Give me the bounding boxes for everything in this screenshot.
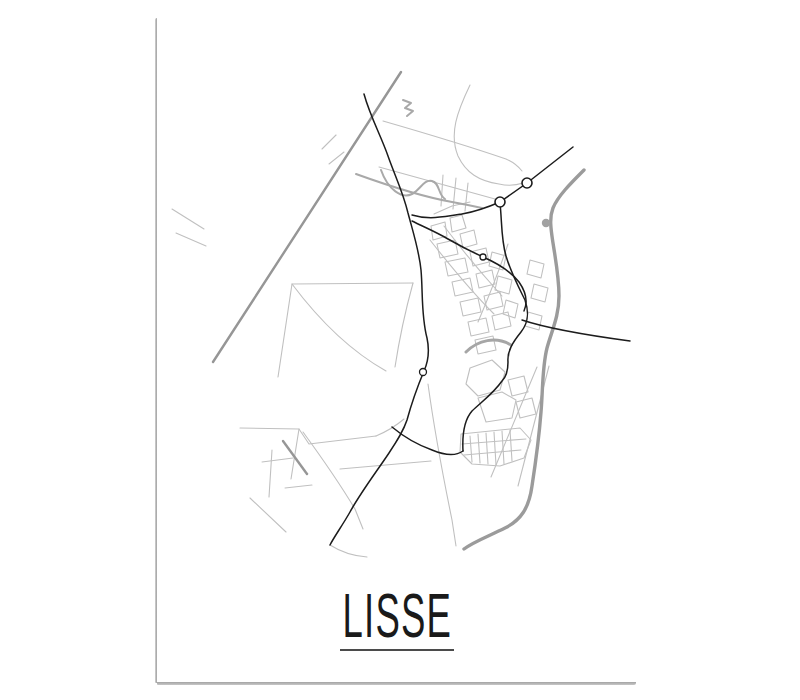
minor-street bbox=[478, 392, 516, 422]
minor-street bbox=[531, 284, 548, 302]
minor-street bbox=[340, 461, 431, 469]
minor-street bbox=[330, 545, 367, 557]
poster: LISSE bbox=[157, 18, 637, 682]
poster-mockup: LISSE bbox=[0, 0, 800, 700]
roundabout-node bbox=[495, 197, 505, 207]
minor-street bbox=[428, 384, 456, 546]
minor-street bbox=[486, 433, 488, 464]
minor-street bbox=[292, 284, 386, 371]
minor-street bbox=[285, 485, 312, 488]
minor-street bbox=[491, 367, 537, 477]
minor-street bbox=[441, 175, 443, 206]
minor-street bbox=[176, 233, 206, 246]
minor-street bbox=[460, 230, 477, 248]
minor-street bbox=[262, 458, 293, 462]
minor-street bbox=[492, 312, 511, 330]
minor-street bbox=[494, 432, 496, 465]
minor-street bbox=[470, 436, 472, 462]
minor-street bbox=[465, 183, 468, 211]
water-stream bbox=[403, 100, 413, 116]
minor-street bbox=[172, 209, 204, 229]
minor-street bbox=[395, 283, 413, 367]
minor-street bbox=[383, 121, 522, 171]
primary-road bbox=[522, 320, 630, 341]
poster-title: LISSE bbox=[342, 584, 451, 647]
minor-street bbox=[503, 300, 518, 318]
minor-street bbox=[527, 260, 544, 278]
minor-street bbox=[460, 298, 481, 316]
minor-street bbox=[303, 432, 363, 529]
minor-street bbox=[510, 430, 512, 461]
roundabout-node bbox=[522, 178, 532, 188]
roundabout-node bbox=[480, 254, 486, 260]
minor-street bbox=[240, 428, 376, 444]
primary-road bbox=[412, 202, 500, 218]
water-dot bbox=[542, 219, 550, 227]
minor-street bbox=[269, 450, 272, 497]
bypass-road bbox=[464, 170, 584, 549]
poster-title-block: LISSE bbox=[157, 584, 637, 651]
primary-road bbox=[330, 94, 428, 545]
water-stream bbox=[381, 170, 445, 199]
minor-street bbox=[466, 360, 505, 396]
minor-street bbox=[379, 167, 495, 199]
minor-street bbox=[516, 398, 536, 418]
minor-street bbox=[453, 178, 456, 209]
minor-street bbox=[250, 498, 286, 532]
minor-street bbox=[478, 434, 480, 463]
secondary-road bbox=[213, 72, 401, 362]
minor-street bbox=[450, 215, 466, 232]
minor-street bbox=[322, 135, 336, 149]
minor-street bbox=[454, 85, 523, 185]
minor-street bbox=[278, 283, 413, 377]
secondary-road bbox=[283, 441, 307, 474]
water-stream bbox=[356, 174, 482, 208]
minor-street bbox=[464, 450, 521, 455]
roundabout-node bbox=[420, 369, 427, 376]
canal bbox=[466, 340, 511, 352]
minor-street bbox=[508, 376, 528, 396]
minor-street bbox=[452, 278, 473, 296]
minor-street bbox=[430, 240, 494, 314]
